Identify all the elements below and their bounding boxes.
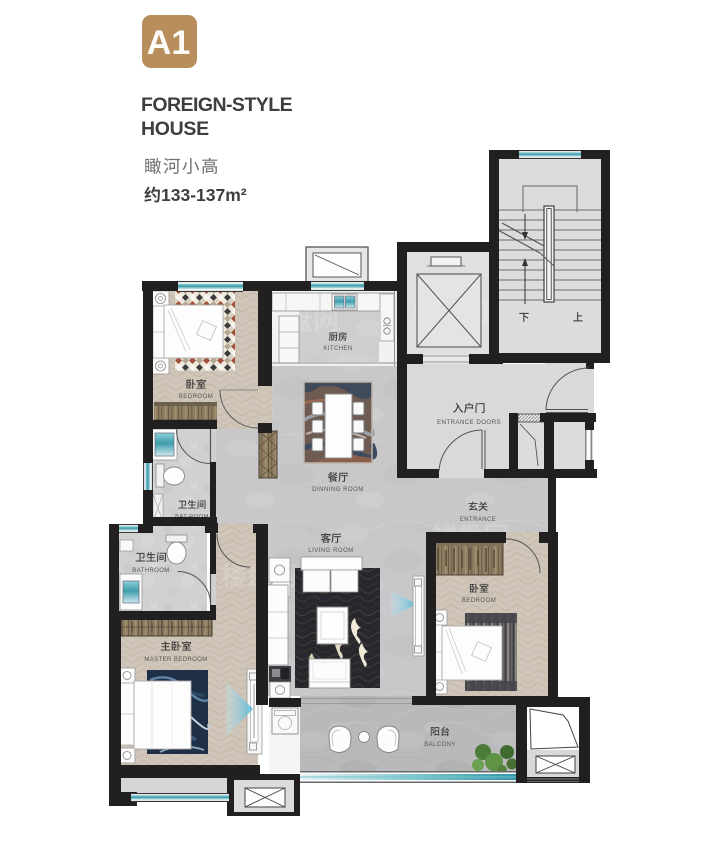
svg-text:BALCONY: BALCONY	[424, 742, 455, 748]
svg-text:KITCHEN: KITCHEN	[323, 346, 352, 352]
svg-text:BEDROOM: BEDROOM	[179, 394, 214, 400]
svg-text:ENTRANCE DOORS: ENTRANCE DOORS	[437, 419, 501, 426]
svg-text:MASTER BEDROOM: MASTER BEDROOM	[144, 657, 207, 663]
svg-text:DINNING ROOM: DINNING ROOM	[312, 487, 364, 493]
svg-text:ENTRANCE: ENTRANCE	[460, 517, 496, 523]
svg-text:FOREIGN-STYLE: FOREIGN-STYLE	[141, 94, 293, 116]
svg-text:HOUSE: HOUSE	[141, 118, 209, 140]
svg-text:BEDROOM: BEDROOM	[462, 598, 497, 604]
svg-text:BATHROOM: BATHROOM	[132, 568, 169, 574]
svg-text:133-137m²: 133-137m²	[161, 185, 247, 205]
svg-text:A1: A1	[147, 24, 190, 62]
svg-text:LIVING ROOM: LIVING ROOM	[308, 548, 354, 554]
